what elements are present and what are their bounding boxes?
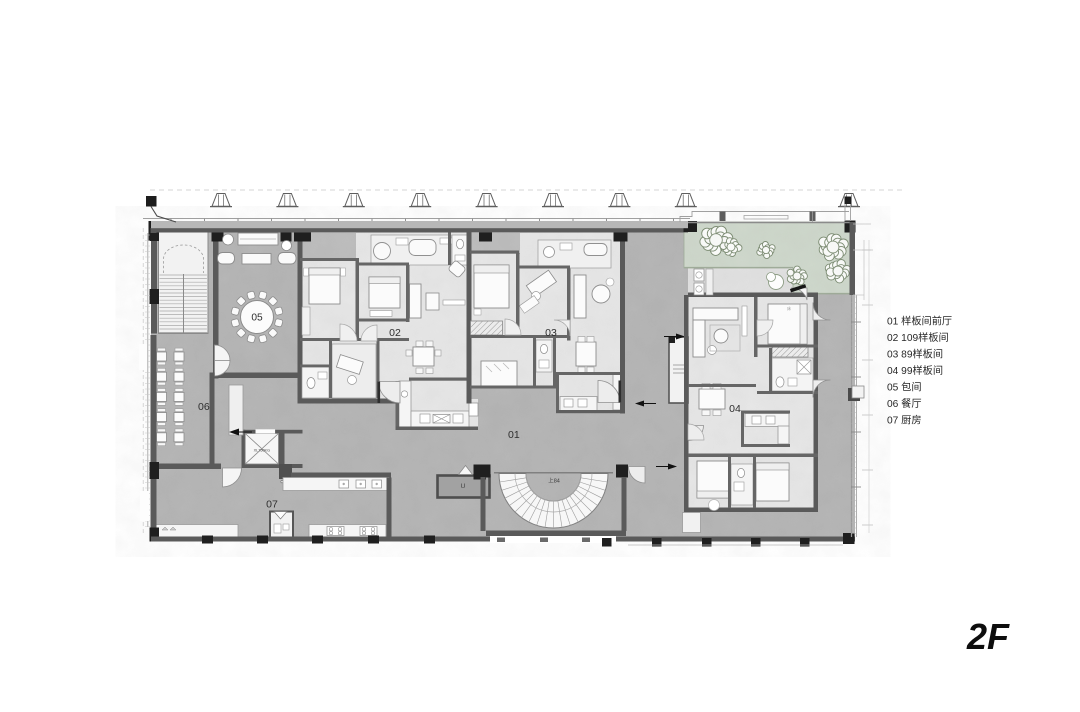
svg-text:床: 床 <box>787 305 791 311</box>
svg-text:03: 03 <box>545 327 557 339</box>
svg-text:06: 06 <box>198 401 210 413</box>
svg-text:06 餐厅: 06 餐厅 <box>887 397 922 410</box>
svg-text:07: 07 <box>266 499 278 511</box>
svg-text:03 89样板间: 03 89样板间 <box>887 348 943 361</box>
svg-text:05 包间: 05 包间 <box>887 381 922 394</box>
svg-text:07 厨房: 07 厨房 <box>887 414 922 427</box>
svg-text:04: 04 <box>729 403 741 415</box>
svg-text:05: 05 <box>251 313 263 324</box>
svg-text:2F: 2F <box>966 616 1010 657</box>
svg-text:01: 01 <box>508 429 520 441</box>
svg-text:01 样板间前厅: 01 样板间前厅 <box>887 315 952 328</box>
svg-text:上84: 上84 <box>548 477 560 485</box>
svg-text:02: 02 <box>389 327 401 339</box>
svg-text:02 109样板间: 02 109样板间 <box>887 331 949 344</box>
svg-text:04 99样板间: 04 99样板间 <box>887 364 943 377</box>
svg-text:XL750KG: XL750KG <box>254 449 271 453</box>
svg-text:U: U <box>461 483 466 490</box>
